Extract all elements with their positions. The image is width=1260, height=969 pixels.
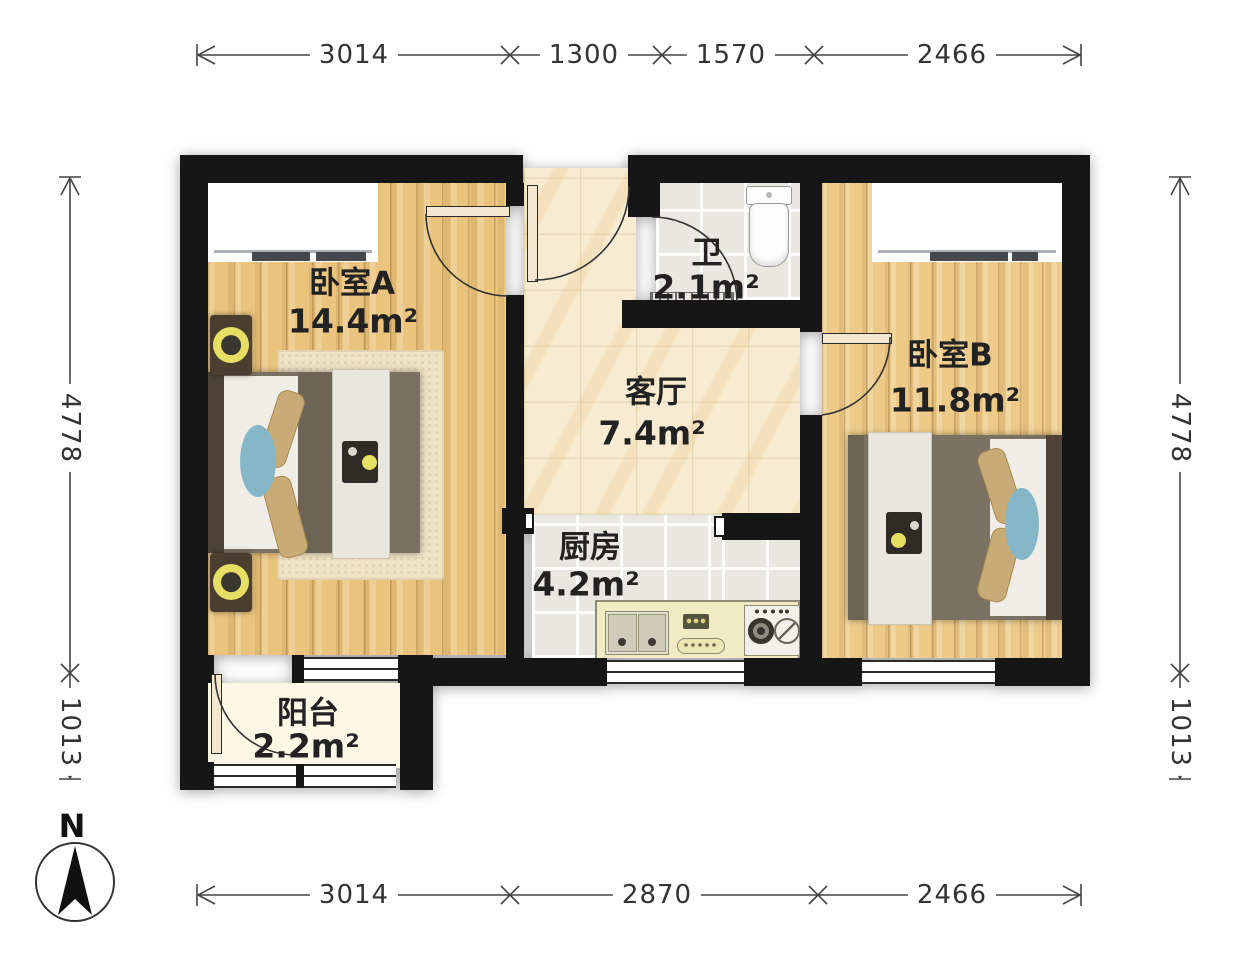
- dimension-lines: [0, 0, 1260, 969]
- dim-top-1: 3014: [310, 40, 398, 70]
- dim-bottom-2: 2870: [613, 880, 701, 910]
- floor-plan: 卧室A 14.4m² 客厅 7.4m² 卫 2.1m² 卧室B 11.8m² 厨…: [0, 0, 1260, 969]
- dim-bottom-3: 2466: [908, 880, 996, 910]
- dim-right-2: 1013: [1165, 688, 1195, 776]
- dim-right-1: 4778: [1165, 384, 1195, 472]
- dim-left-1: 4778: [55, 384, 85, 472]
- dim-left-2: 1013: [55, 688, 85, 776]
- dim-top-2: 1300: [540, 40, 628, 70]
- dim-top-4: 2466: [908, 40, 996, 70]
- dim-bottom-1: 3014: [310, 880, 398, 910]
- dim-top-3: 1570: [687, 40, 775, 70]
